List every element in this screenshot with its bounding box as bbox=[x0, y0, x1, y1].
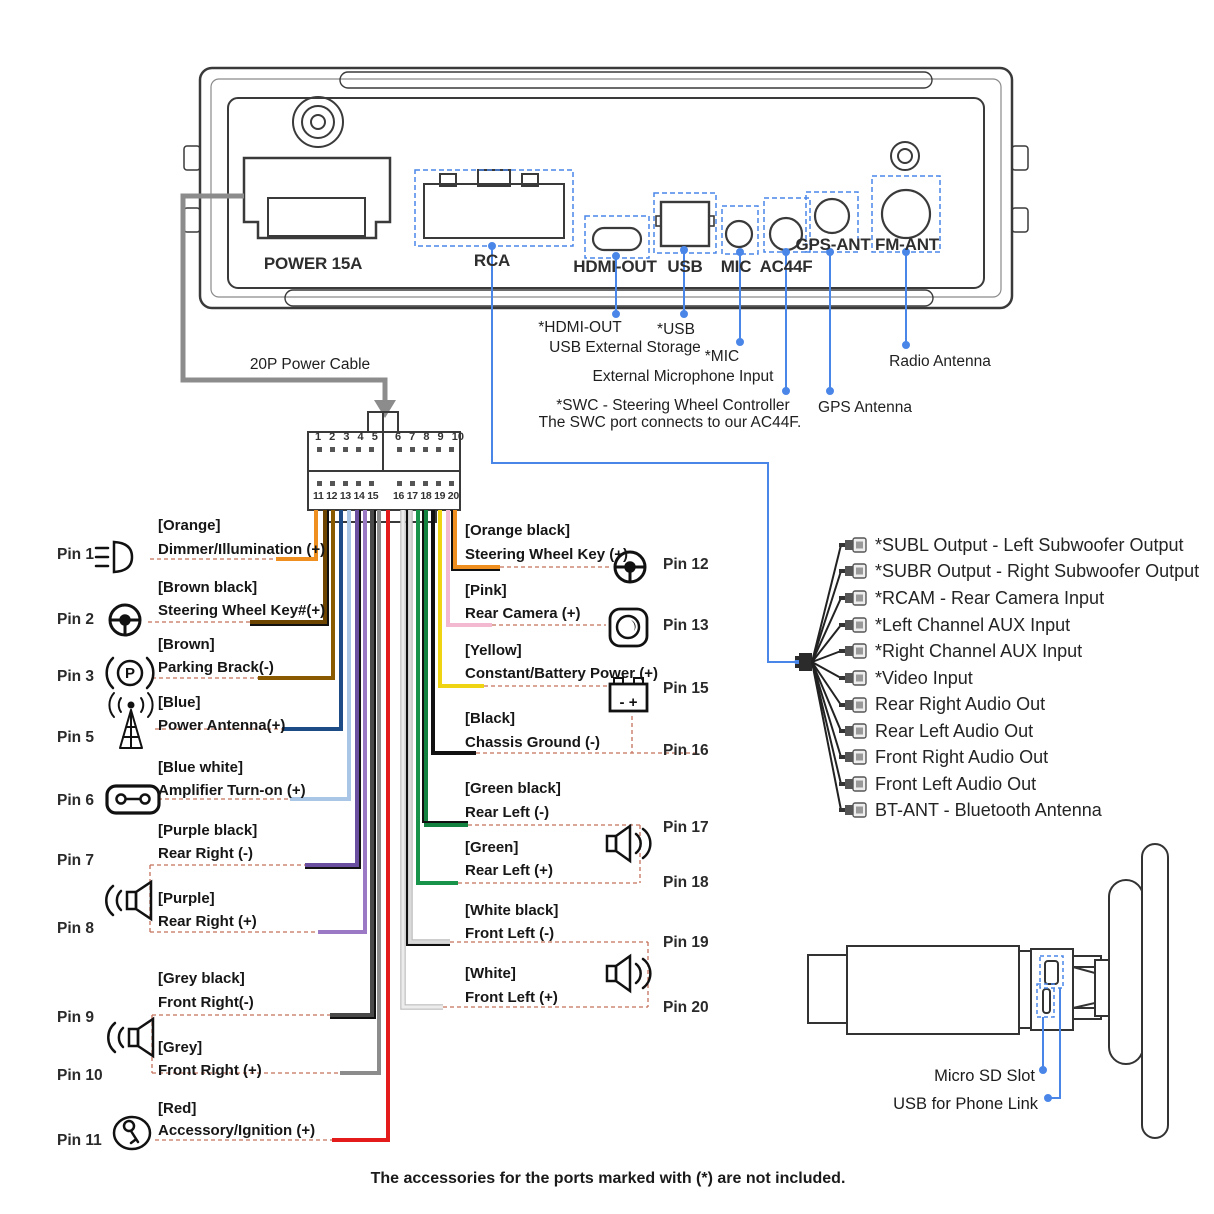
mic-port bbox=[726, 221, 752, 247]
pin-19-function: Front Left (-) bbox=[465, 925, 554, 942]
pin-9-color: [Grey black] bbox=[158, 970, 245, 987]
pin-10-color: [Grey] bbox=[158, 1039, 202, 1056]
harness-connector bbox=[308, 412, 460, 522]
pin-17-function: Rear Left (-) bbox=[465, 804, 549, 821]
rca-port bbox=[424, 170, 564, 238]
rca-output-label: Rear Left Audio Out bbox=[875, 721, 1033, 742]
pin-icons-middle bbox=[607, 552, 650, 991]
pin-18-color: [Green] bbox=[465, 839, 518, 856]
pin-6-function: Amplifier Turn-on (+) bbox=[158, 782, 306, 799]
rca-hub-connector bbox=[799, 653, 812, 671]
wire-pin3 bbox=[258, 510, 333, 678]
pin-20-number: Pin 20 bbox=[663, 999, 709, 1017]
unit-side-view bbox=[808, 844, 1168, 1138]
micro-sd-slot-label: Micro SD Slot bbox=[880, 1067, 1035, 1086]
rca-output-label: *RCAM - Rear Camera Input bbox=[875, 588, 1104, 609]
camera-icon bbox=[610, 609, 647, 646]
speaker-icon bbox=[607, 826, 650, 861]
pin-18-function: Rear Left (+) bbox=[465, 862, 553, 879]
pin-12-function: Steering Wheel Key (+) bbox=[465, 546, 628, 563]
pin-13-function: Rear Camera (+) bbox=[465, 605, 580, 622]
rca-output-label: *Video Input bbox=[875, 668, 973, 689]
pin-19-number: Pin 19 bbox=[663, 934, 709, 952]
pin-numbers-top-left: 1 2 3 4 5 bbox=[315, 431, 378, 443]
rca-plug-icons bbox=[839, 538, 866, 817]
pin-5-function: Power Antenna(+) bbox=[158, 717, 285, 734]
pin-15-number: Pin 15 bbox=[663, 680, 709, 698]
pin-12-color: [Orange black] bbox=[465, 522, 570, 539]
wire-pin19-black bbox=[407, 510, 450, 945]
pin-icons-left bbox=[96, 542, 159, 1149]
pin-1-number: Pin 1 bbox=[57, 546, 94, 564]
power-port bbox=[244, 158, 390, 238]
harness-connector-pins bbox=[317, 447, 454, 486]
footnote: The accessories for the ports marked wit… bbox=[308, 1170, 908, 1188]
pin-20-color: [White] bbox=[465, 965, 516, 982]
swc-callout-sub: The SWC port connects to our AC44F. bbox=[510, 414, 830, 432]
wire-pin17-black bbox=[423, 510, 468, 822]
usb-port bbox=[656, 202, 714, 246]
pin-10-function: Front Right (+) bbox=[158, 1062, 262, 1079]
rca-output-label: *SUBL Output - Left Subwoofer Output bbox=[875, 535, 1184, 556]
pin-1-function: Dimmer/Illumination (+) bbox=[158, 541, 325, 558]
pin-8-function: Rear Right (+) bbox=[158, 913, 257, 930]
ac44f-port-label: AC44F bbox=[736, 257, 836, 277]
power-port-label: POWER 15A bbox=[253, 254, 373, 274]
pin-17-color: [Green black] bbox=[465, 780, 561, 797]
pin-10-number: Pin 10 bbox=[57, 1067, 103, 1085]
rca-output-label: BT-ANT - Bluetooth Antenna bbox=[875, 800, 1102, 821]
pin-11-function: Accessory/Ignition (+) bbox=[158, 1122, 315, 1139]
pin-15-color: [Yellow] bbox=[465, 642, 522, 659]
pin-20-function: Front Left (+) bbox=[465, 989, 558, 1006]
rca-fanout bbox=[795, 538, 866, 817]
pin-17-number: Pin 17 bbox=[663, 819, 709, 837]
pin-16-function: Chassis Ground (-) bbox=[465, 734, 600, 751]
pin-12-number: Pin 12 bbox=[663, 556, 709, 574]
rca-output-label: Front Right Audio Out bbox=[875, 747, 1048, 768]
pin-numbers-bottom-right: 16 17 18 19 20 bbox=[393, 490, 459, 502]
pin-8-color: [Purple] bbox=[158, 890, 215, 907]
parking-letter: P bbox=[122, 665, 138, 682]
pin-6-number: Pin 6 bbox=[57, 792, 94, 810]
pin-8-number: Pin 8 bbox=[57, 920, 94, 938]
pin-11-number: Pin 11 bbox=[57, 1132, 102, 1150]
fm-ant-port bbox=[882, 190, 930, 238]
usb-phone-slot bbox=[1045, 961, 1058, 984]
rca-output-label: Front Left Audio Out bbox=[875, 774, 1036, 795]
pin-1-color: [Orange] bbox=[158, 517, 221, 534]
gps-ant-port bbox=[815, 199, 849, 233]
swc-callout: *SWC - Steering Wheel Controller bbox=[513, 397, 833, 415]
pin-2-number: Pin 2 bbox=[57, 611, 94, 629]
pin-3-function: Parking Brack(-) bbox=[158, 659, 274, 676]
pin-5-number: Pin 5 bbox=[57, 729, 94, 747]
rca-port-label: RCA bbox=[432, 251, 552, 271]
wire-pin9-black bbox=[330, 510, 375, 1018]
usb-phone-link-label: USB for Phone Link bbox=[860, 1095, 1038, 1114]
pin-13-color: [Pink] bbox=[465, 582, 507, 599]
pin-7-function: Rear Right (-) bbox=[158, 845, 253, 862]
pin-18-number: Pin 18 bbox=[663, 874, 709, 892]
pin-2-function: Steering Wheel Key#(+) bbox=[158, 602, 325, 619]
speaker-icon bbox=[607, 956, 650, 991]
pin-3-color: [Brown] bbox=[158, 636, 215, 653]
mount-screw-icon bbox=[293, 97, 343, 147]
antenna-icon bbox=[109, 693, 152, 748]
battery-sign: - + bbox=[611, 694, 646, 711]
fm-ant-port-label: FM-ANT bbox=[857, 235, 957, 255]
pin-16-color: [Black] bbox=[465, 710, 515, 727]
pin-6-color: [Blue white] bbox=[158, 759, 243, 776]
pin-7-color: [Purple black] bbox=[158, 822, 257, 839]
pin-numbers-top-right: 6 7 8 9 10 bbox=[395, 431, 464, 443]
amplifier-icon bbox=[107, 786, 159, 813]
rca-output-label: Rear Right Audio Out bbox=[875, 694, 1045, 715]
pin-13-number: Pin 13 bbox=[663, 617, 709, 635]
hdmi-port bbox=[593, 228, 641, 250]
rca-output-label: *Left Channel AUX Input bbox=[875, 615, 1070, 636]
pin-numbers-bottom-left: 11 12 13 14 15 bbox=[313, 490, 378, 502]
pin-15-function: Constant/Battery Power (+) bbox=[465, 665, 658, 682]
antenna-nut-icon bbox=[891, 142, 919, 170]
pin-11-color: [Red] bbox=[158, 1100, 196, 1117]
micro-sd-slot bbox=[1043, 989, 1050, 1013]
speaker-icon bbox=[106, 882, 151, 919]
mic-callout: *MIC bbox=[672, 348, 772, 366]
pin-5-color: [Blue] bbox=[158, 694, 201, 711]
speaker-icon bbox=[108, 1019, 153, 1056]
pin-7-number: Pin 7 bbox=[57, 852, 94, 870]
pin-9-function: Front Right(-) bbox=[158, 994, 254, 1011]
steering-wheel-icon bbox=[110, 605, 140, 635]
usb-callout: *USB bbox=[626, 321, 726, 339]
pin-19-color: [White black] bbox=[465, 902, 558, 919]
gps-antenna-callout: GPS Antenna bbox=[795, 399, 935, 417]
rca-output-label: *Right Channel AUX Input bbox=[875, 641, 1082, 662]
pin-3-number: Pin 3 bbox=[57, 668, 94, 686]
headlight-icon bbox=[96, 542, 132, 572]
key-icon bbox=[114, 1117, 150, 1149]
harness-label: 20P Power Cable bbox=[240, 356, 380, 374]
pin-9-number: Pin 9 bbox=[57, 1009, 94, 1027]
pin-2-color: [Brown black] bbox=[158, 579, 257, 596]
pin-16-number: Pin 16 bbox=[663, 742, 709, 760]
rca-output-label: *SUBR Output - Right Subwoofer Output bbox=[875, 561, 1199, 582]
mic-callout-sub: External Microphone Input bbox=[553, 368, 813, 386]
wiring-diagram: POWER 15A RCA HDMI-OUT USB MIC AC44F GPS… bbox=[0, 0, 1214, 1214]
radio-antenna-callout: Radio Antenna bbox=[870, 353, 1010, 371]
